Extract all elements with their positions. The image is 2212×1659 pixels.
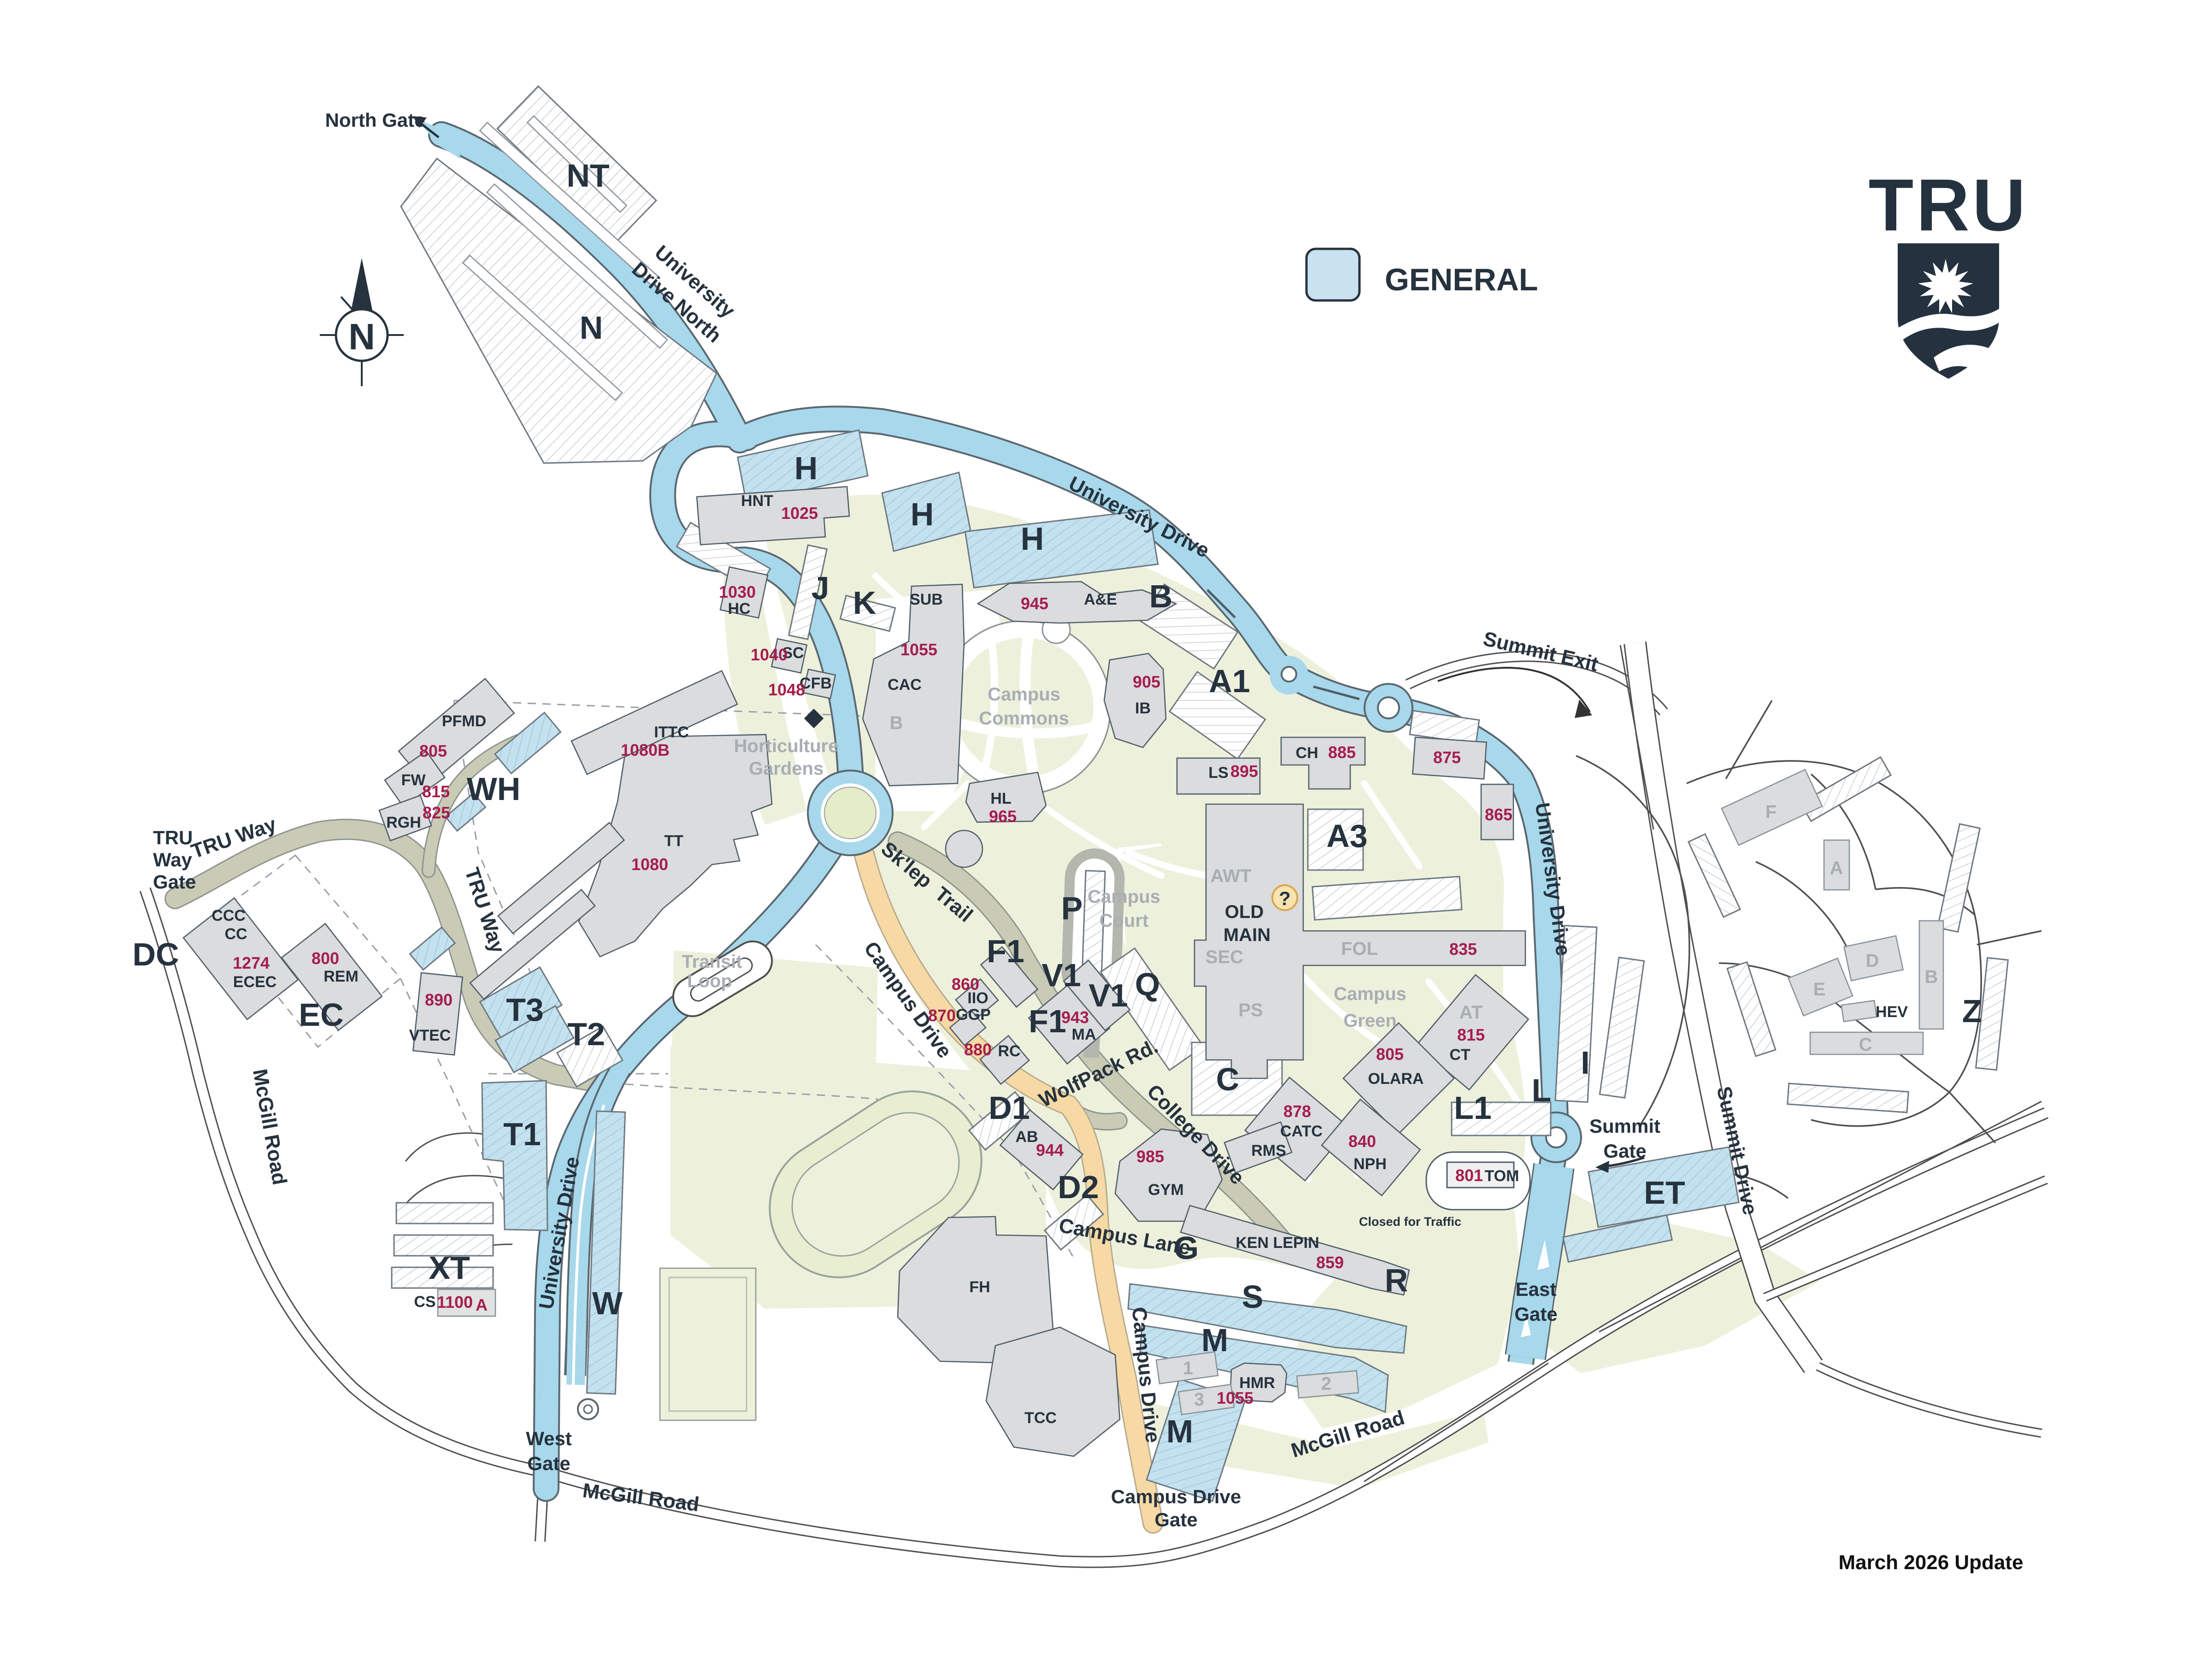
svg-text:OLARA: OLARA: [1368, 1070, 1424, 1088]
svg-text:M: M: [1166, 1413, 1193, 1449]
svg-text:D1: D1: [988, 1090, 1030, 1126]
svg-text:1080B: 1080B: [621, 741, 670, 759]
svg-text:944: 944: [1036, 1141, 1064, 1159]
svg-text:VTEC: VTEC: [409, 1027, 451, 1044]
svg-text:TRU: TRU: [153, 827, 193, 848]
svg-text:880: 880: [964, 1040, 992, 1059]
svg-text:OLD: OLD: [1225, 902, 1264, 922]
svg-text:AWT: AWT: [1211, 866, 1252, 886]
svg-text:L: L: [1532, 1072, 1552, 1108]
svg-text:1055: 1055: [900, 640, 937, 659]
svg-text:V1: V1: [1088, 977, 1128, 1013]
svg-text:C: C: [1859, 1035, 1872, 1055]
svg-text:1048: 1048: [768, 680, 805, 699]
svg-text:March 2026 Update: March 2026 Update: [1838, 1551, 2023, 1574]
svg-text:RGH: RGH: [386, 814, 421, 831]
svg-text:Campus Drive: Campus Drive: [1111, 1486, 1241, 1507]
svg-text:3: 3: [1194, 1389, 1204, 1410]
svg-text:AT: AT: [1459, 1002, 1483, 1023]
svg-text:TT: TT: [664, 832, 683, 850]
svg-text:Gate: Gate: [153, 871, 196, 893]
svg-text:GYM: GYM: [1148, 1181, 1183, 1199]
svg-text:895: 895: [1230, 762, 1258, 781]
svg-text:1030: 1030: [719, 582, 756, 601]
svg-text:Campus: Campus: [1334, 984, 1406, 1004]
svg-text:A: A: [1830, 858, 1843, 878]
svg-text:KEN LEPIN: KEN LEPIN: [1235, 1234, 1319, 1252]
svg-text:Way: Way: [153, 849, 192, 871]
svg-text:Q: Q: [1135, 966, 1160, 1002]
svg-text:B: B: [1925, 967, 1938, 987]
svg-text:1: 1: [1183, 1358, 1193, 1378]
svg-text:PFMD: PFMD: [442, 712, 486, 730]
svg-text:RMS: RMS: [1251, 1142, 1286, 1159]
svg-text:Gate: Gate: [527, 1453, 570, 1474]
svg-text:R: R: [1385, 1262, 1408, 1298]
svg-text:A&E: A&E: [1084, 591, 1117, 608]
svg-text:TRU: TRU: [1869, 164, 2029, 246]
svg-text:1055: 1055: [1217, 1388, 1253, 1407]
svg-text:West: West: [526, 1428, 572, 1449]
svg-text:Court: Court: [1100, 911, 1149, 931]
svg-text:840: 840: [1348, 1132, 1376, 1151]
svg-text:HNT: HNT: [741, 492, 773, 510]
svg-text:H: H: [1021, 521, 1044, 557]
svg-text:Loop: Loop: [687, 971, 732, 991]
svg-text:Closed for Traffic: Closed for Traffic: [1359, 1215, 1461, 1229]
svg-text:815: 815: [1457, 1025, 1485, 1044]
svg-text:IB: IB: [1135, 700, 1151, 717]
svg-text:WH: WH: [467, 771, 521, 807]
svg-text:1080: 1080: [631, 855, 668, 874]
svg-text:EC: EC: [299, 997, 343, 1033]
svg-text:D: D: [1866, 951, 1879, 971]
svg-text:1274: 1274: [233, 953, 270, 972]
svg-text:CATC: CATC: [1280, 1123, 1323, 1140]
svg-text:NT: NT: [566, 158, 609, 194]
svg-text:?: ?: [1279, 888, 1291, 909]
svg-text:I: I: [1581, 1045, 1589, 1081]
svg-text:1025: 1025: [781, 504, 818, 523]
svg-text:1100: 1100: [437, 1293, 473, 1312]
svg-text:CCC: CCC: [212, 907, 246, 924]
svg-text:Gardens: Gardens: [749, 759, 824, 779]
svg-text:N: N: [348, 316, 375, 357]
svg-text:TOM: TOM: [1485, 1167, 1519, 1185]
svg-text:H: H: [794, 450, 818, 486]
svg-text:T3: T3: [506, 992, 544, 1028]
svg-text:F1: F1: [987, 933, 1024, 969]
svg-text:865: 865: [1485, 805, 1512, 824]
svg-text:HC: HC: [728, 600, 750, 618]
svg-text:N: N: [580, 310, 603, 346]
svg-text:T2: T2: [567, 1016, 605, 1052]
svg-text:H: H: [911, 496, 934, 532]
svg-text:IIO: IIO: [967, 989, 988, 1007]
svg-text:L1: L1: [1454, 1090, 1492, 1126]
svg-text:835: 835: [1449, 940, 1477, 959]
svg-text:M: M: [1201, 1322, 1228, 1358]
svg-text:P: P: [1061, 890, 1083, 926]
svg-text:A1: A1: [1209, 663, 1250, 699]
svg-text:875: 875: [1433, 748, 1461, 767]
svg-text:T1: T1: [503, 1116, 541, 1152]
svg-text:800: 800: [312, 949, 339, 968]
svg-text:Horticulture: Horticulture: [734, 736, 839, 756]
svg-text:859: 859: [1316, 1253, 1344, 1272]
svg-text:GENERAL: GENERAL: [1385, 262, 1538, 297]
svg-text:W: W: [592, 1285, 623, 1321]
svg-text:Summit: Summit: [1589, 1115, 1660, 1137]
svg-text:REM: REM: [324, 968, 359, 985]
svg-text:E: E: [1813, 979, 1826, 1000]
svg-text:TCC: TCC: [1024, 1409, 1057, 1427]
svg-text:ECEC: ECEC: [233, 973, 276, 991]
svg-text:J: J: [812, 570, 829, 606]
svg-text:ET: ET: [1644, 1175, 1685, 1211]
svg-text:B: B: [1149, 578, 1173, 614]
svg-text:MAIN: MAIN: [1224, 925, 1271, 945]
svg-text:North Gate: North Gate: [325, 109, 425, 131]
svg-text:Campus: Campus: [988, 684, 1060, 705]
svg-text:DC: DC: [132, 936, 179, 972]
svg-text:MA: MA: [1072, 1026, 1096, 1043]
svg-text:965: 965: [989, 807, 1017, 826]
svg-text:943: 943: [1061, 1008, 1089, 1027]
svg-text:801: 801: [1455, 1166, 1483, 1185]
svg-text:FOL: FOL: [1341, 939, 1378, 959]
svg-text:825: 825: [423, 803, 450, 822]
svg-text:SEC: SEC: [1206, 947, 1243, 967]
svg-text:NPH: NPH: [1353, 1155, 1387, 1173]
svg-text:S: S: [1242, 1279, 1264, 1315]
svg-text:F: F: [1765, 802, 1777, 822]
svg-text:AB: AB: [1015, 1128, 1038, 1146]
svg-text:CAC: CAC: [888, 676, 922, 694]
svg-text:LS: LS: [1208, 764, 1228, 782]
svg-text:CC: CC: [224, 925, 247, 943]
svg-text:890: 890: [425, 990, 453, 1009]
svg-text:815: 815: [422, 782, 450, 801]
svg-text:805: 805: [1376, 1045, 1404, 1064]
svg-text:C: C: [1216, 1061, 1240, 1097]
svg-text:A: A: [476, 1295, 488, 1314]
svg-text:2: 2: [1321, 1374, 1331, 1394]
svg-text:A3: A3: [1326, 818, 1367, 854]
svg-text:805: 805: [419, 741, 447, 760]
svg-text:878: 878: [1283, 1102, 1311, 1121]
svg-text:Gate: Gate: [1514, 1303, 1557, 1325]
svg-text:905: 905: [1133, 672, 1160, 691]
svg-text:885: 885: [1328, 743, 1356, 762]
svg-text:HL: HL: [990, 790, 1011, 807]
svg-text:ITTC: ITTC: [654, 724, 689, 741]
svg-text:F1: F1: [1029, 1003, 1066, 1039]
svg-text:Campus: Campus: [1088, 887, 1160, 907]
svg-text:RC: RC: [998, 1042, 1020, 1060]
svg-text:Gate: Gate: [1154, 1509, 1197, 1530]
svg-text:B: B: [890, 713, 903, 733]
svg-text:XT: XT: [429, 1250, 470, 1286]
svg-text:CH: CH: [1295, 744, 1318, 762]
svg-text:GGP: GGP: [956, 1006, 991, 1024]
svg-text:V1: V1: [1041, 957, 1081, 993]
svg-text:Z: Z: [1962, 993, 1982, 1029]
svg-text:FH: FH: [969, 1278, 990, 1296]
svg-text:East: East: [1516, 1278, 1557, 1300]
svg-text:SUB: SUB: [910, 591, 943, 608]
svg-text:D2: D2: [1058, 1169, 1099, 1205]
svg-text:Transit: Transit: [682, 952, 742, 972]
svg-text:CS: CS: [414, 1293, 435, 1311]
svg-text:1040: 1040: [751, 645, 788, 664]
svg-text:Green: Green: [1343, 1011, 1397, 1031]
svg-text:985: 985: [1136, 1147, 1164, 1166]
svg-text:945: 945: [1021, 594, 1048, 613]
svg-text:CT: CT: [1449, 1046, 1471, 1064]
svg-text:K: K: [853, 585, 877, 621]
svg-text:Commons: Commons: [979, 708, 1069, 729]
svg-text:HEV: HEV: [1876, 1003, 1908, 1021]
svg-text:PS: PS: [1238, 1000, 1263, 1020]
